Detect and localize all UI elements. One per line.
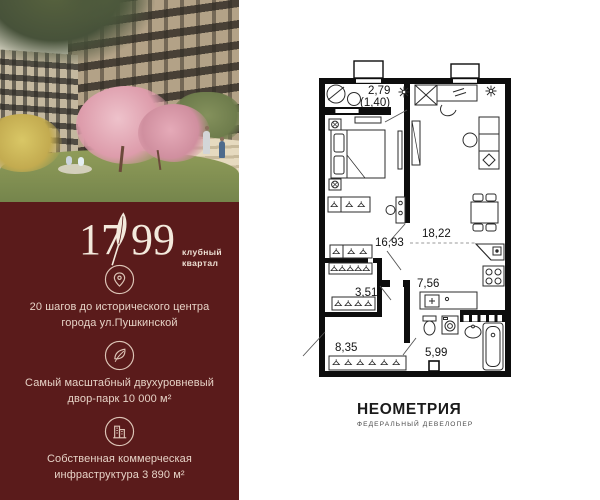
room-corridor bbox=[329, 356, 406, 370]
room-label-bathroom: 5,99 bbox=[425, 347, 447, 359]
developer-subtitle: ФЕДЕРАЛЬНЫЙ ДЕВЕЛОПЕР bbox=[357, 421, 497, 428]
developer-name: НЕОМЕТРИЯ bbox=[357, 401, 497, 419]
feature-park-text: Самый масштабный двухуровневый двор-парк… bbox=[25, 376, 214, 407]
logo-tagline-line1: клубный bbox=[182, 247, 222, 258]
room-label-balcony-reduced: (1,40) bbox=[360, 97, 390, 109]
feature-location: 20 шагов до исторического центра города … bbox=[30, 264, 210, 331]
feather-icon bbox=[105, 211, 133, 269]
location-pin-icon bbox=[104, 264, 135, 295]
photo-picnic-blanket bbox=[58, 164, 92, 174]
building-photo bbox=[0, 0, 239, 202]
feature-location-text: 20 шагов до исторического центра города … bbox=[30, 300, 210, 331]
brand-text-panel: 17 99 клубный квартал bbox=[0, 202, 239, 500]
feature-commercial-line2: инфраструктура 3 890 м² bbox=[47, 468, 192, 484]
feature-location-line1: 20 шагов до исторического центра bbox=[30, 300, 210, 316]
buildings-icon bbox=[104, 416, 135, 447]
feature-commercial: Собственная коммерческая инфраструктура … bbox=[47, 416, 192, 483]
feature-list: 20 шагов до исторического центра города … bbox=[0, 264, 239, 484]
photo-person-sitting bbox=[66, 156, 72, 165]
feature-location-line2: города ул.Пушкинской bbox=[30, 316, 210, 332]
room-label-corridor: 8,35 bbox=[335, 342, 357, 354]
room-label-hall: 7,56 bbox=[417, 278, 439, 290]
room-living-kitchen bbox=[412, 85, 504, 309]
feature-park-line1: Самый масштабный двухуровневый bbox=[25, 376, 214, 392]
feature-park-line2: двор-парк 10 000 м² bbox=[25, 392, 214, 408]
developer-logo: НЕОМЕТРИЯ ФЕДЕРАЛЬНЫЙ ДЕВЕЛОПЕР bbox=[357, 401, 497, 428]
feature-commercial-text: Собственная коммерческая инфраструктура … bbox=[47, 452, 192, 483]
photo-person-child bbox=[219, 141, 225, 158]
photo-person-sitting-2 bbox=[78, 157, 84, 166]
logo-number-99: 99 bbox=[131, 218, 175, 262]
room-label-balcony: 2,79 bbox=[368, 85, 390, 97]
feature-park: Самый масштабный двухуровневый двор-парк… bbox=[25, 340, 214, 407]
leaf-icon bbox=[104, 340, 135, 371]
photo-person-walking bbox=[203, 131, 210, 154]
floor-plan: 2,79 (1,40) 16,93 18,22 3,51 7,56 8,35 5… bbox=[295, 55, 525, 390]
brand-panel: 17 99 клубный квартал bbox=[0, 0, 239, 500]
feature-commercial-line1: Собственная коммерческая bbox=[47, 452, 192, 468]
room-label-living-kitchen: 18,22 bbox=[422, 228, 451, 240]
photo-blossom-tree-2 bbox=[138, 104, 210, 162]
room-label-bedroom: 16,93 bbox=[375, 237, 404, 249]
room-label-wardrobe: 3,51 bbox=[355, 287, 377, 299]
project-logo: 17 99 клубный квартал bbox=[0, 210, 239, 268]
